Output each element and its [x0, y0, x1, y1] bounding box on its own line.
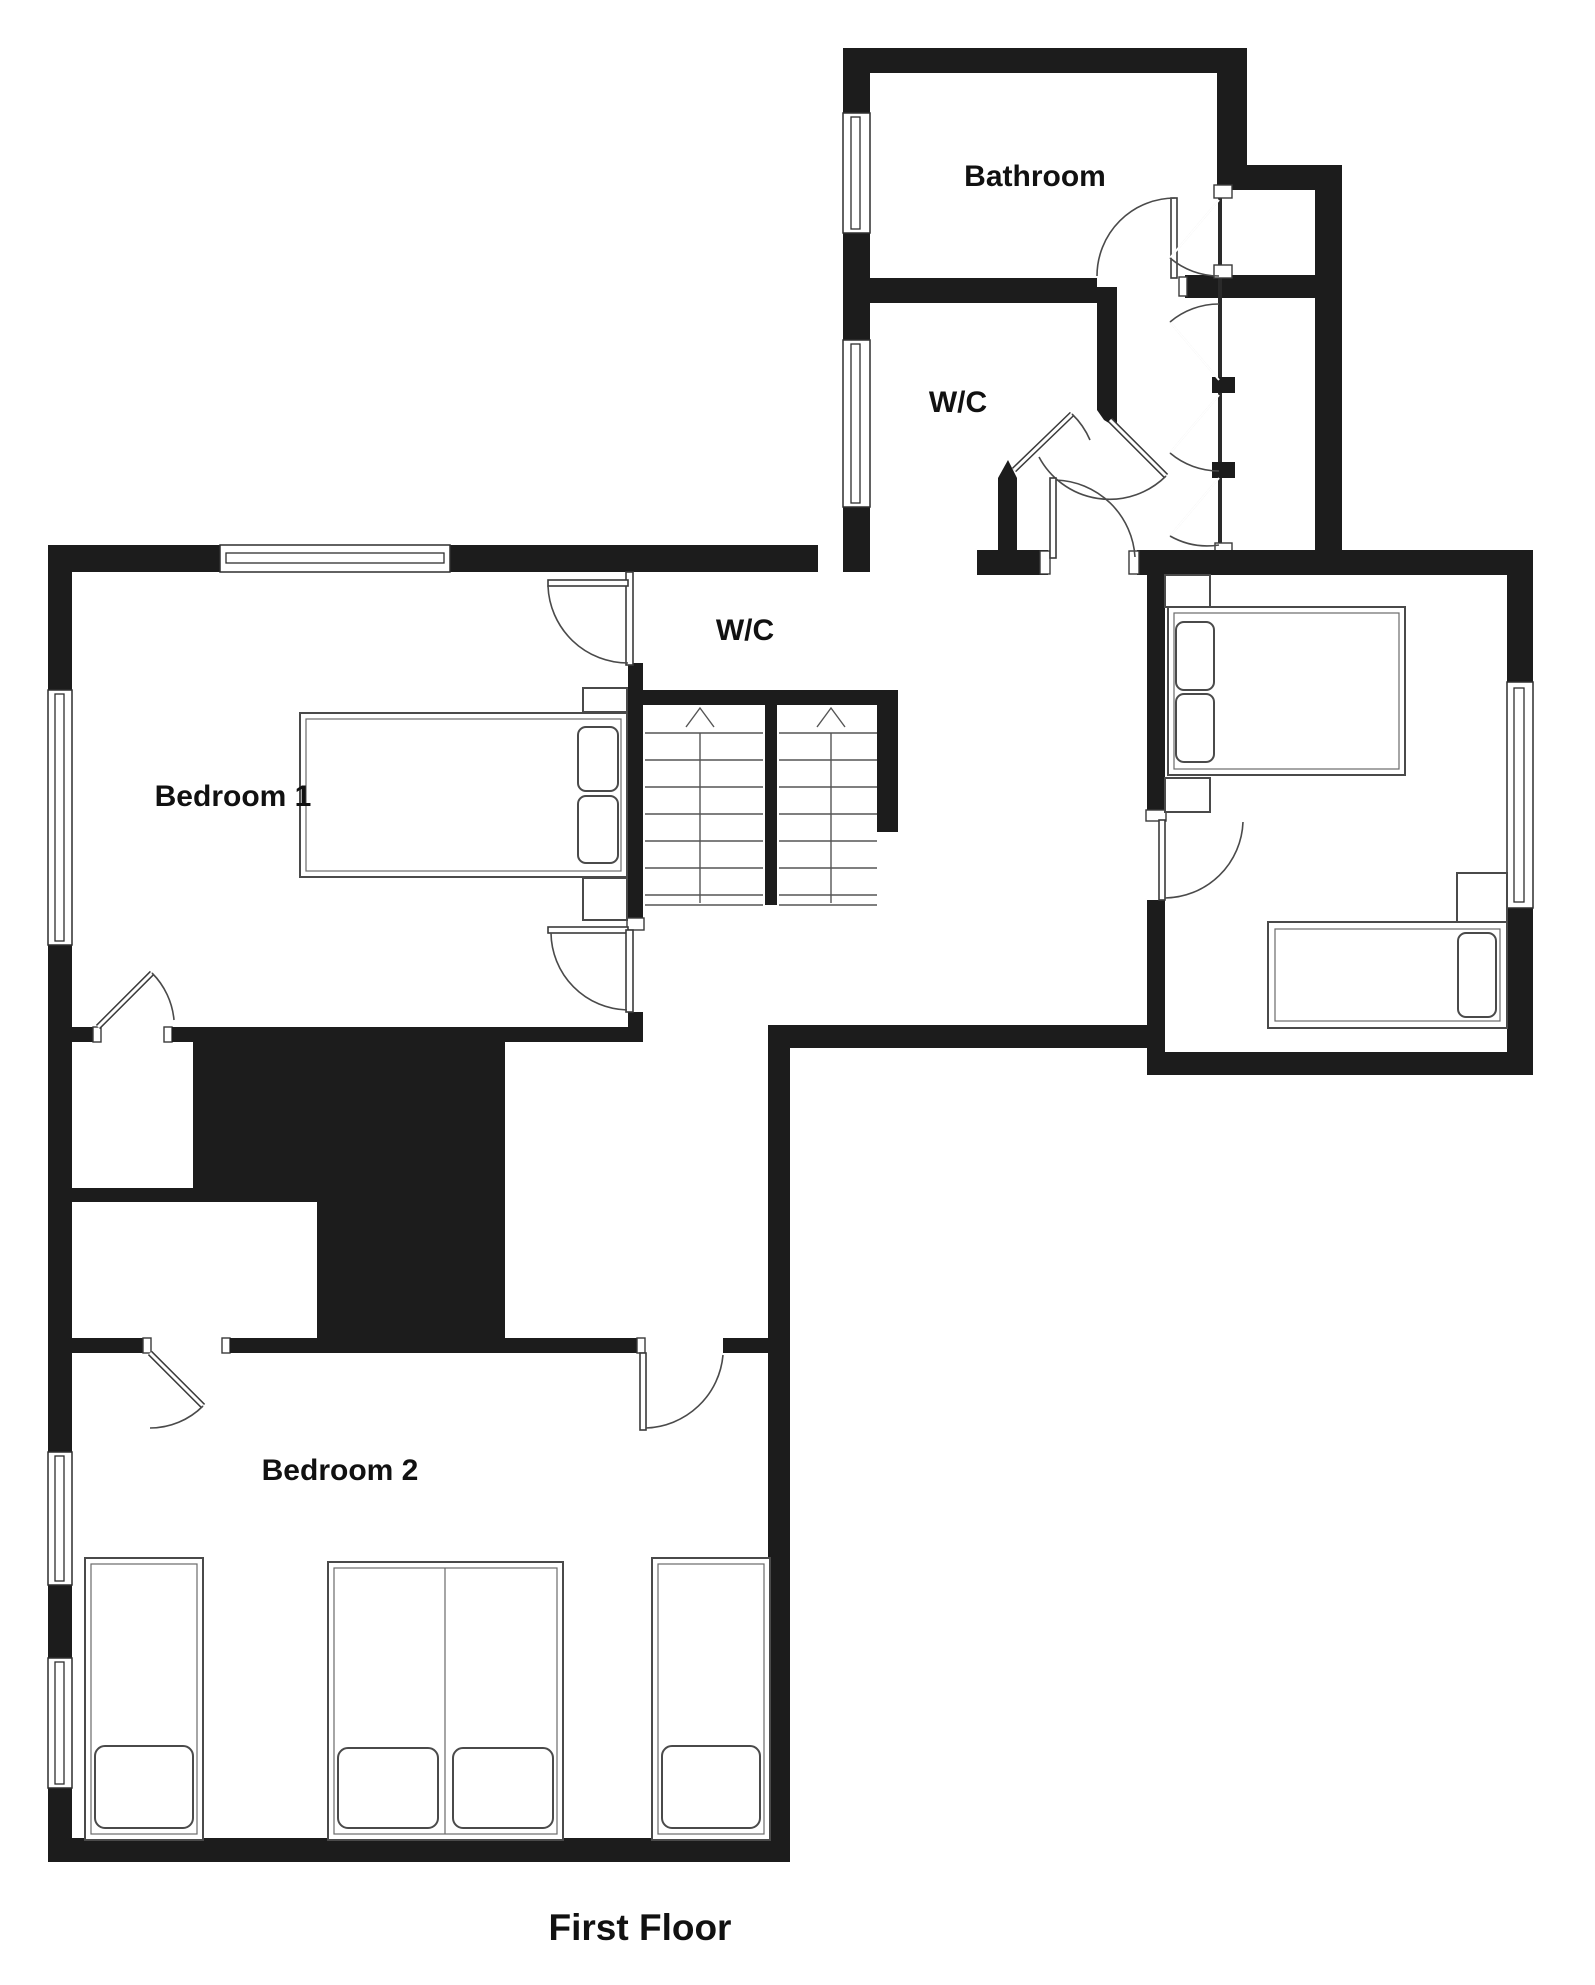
- bedroom1-top-window: [220, 545, 450, 572]
- pillow: [1458, 933, 1496, 1017]
- stair-treads-left-flight: [645, 733, 763, 905]
- pillow: [1176, 622, 1214, 690]
- top-section-walls: [843, 48, 1342, 575]
- bedroom2-door-left: [150, 1353, 203, 1428]
- pillow: [1176, 694, 1214, 762]
- bedside-table: [1165, 778, 1210, 812]
- pillow: [453, 1748, 553, 1828]
- bedroom1-left-window: [48, 690, 72, 945]
- pillow: [95, 1746, 193, 1828]
- bedroom2-door-right: [640, 1353, 723, 1430]
- closet-door-4: [1170, 478, 1219, 546]
- bedside-table: [1165, 575, 1210, 607]
- wc-lower-label: W/C: [716, 614, 774, 647]
- stair-up-arrow-left: [686, 708, 714, 903]
- wc-upper-door: [1014, 414, 1090, 470]
- solid-core-lower: [317, 1188, 505, 1340]
- closet-door-3: [1170, 395, 1219, 471]
- bedroom1-furniture: [300, 688, 627, 920]
- bedroom2-furniture: [85, 1558, 770, 1840]
- bedside-table: [1457, 873, 1507, 922]
- double-bed: [1168, 607, 1405, 775]
- pillow: [338, 1748, 438, 1828]
- pillow: [662, 1746, 760, 1828]
- floor-plan-page: Bathroom W/C W/C Bedroom 1 Bedroom 2 Fir…: [0, 0, 1595, 1985]
- double-bed: [300, 713, 627, 877]
- wc-upper-window: [843, 340, 870, 507]
- wc-upper-label: W/C: [929, 386, 987, 419]
- landing-hall-door: [1040, 478, 1139, 574]
- hallway-closets: [1170, 185, 1235, 556]
- staircase: [645, 708, 877, 905]
- bedroom1-label: Bedroom 1: [155, 780, 312, 813]
- stair-up-arrow-right: [817, 708, 845, 903]
- bedroom3-furniture: [1165, 575, 1507, 1028]
- bathroom-window: [843, 113, 870, 233]
- closet-door-2: [1170, 304, 1219, 380]
- twin-beds: [328, 1562, 563, 1840]
- bedroom3-right-window: [1507, 682, 1533, 908]
- solid-core-upper: [203, 1037, 505, 1190]
- bathroom-door: [1097, 198, 1187, 296]
- bedroom1-closet-door: [98, 973, 174, 1027]
- wc-lower-door: [548, 572, 633, 665]
- pillow: [578, 796, 618, 863]
- hallway-door: [1039, 420, 1166, 499]
- single-bed: [652, 1558, 770, 1840]
- single-bed: [85, 1558, 203, 1840]
- bedside-table: [583, 688, 627, 712]
- page-title: First Floor: [549, 1907, 732, 1948]
- bedroom2-left-window-2: [48, 1658, 72, 1788]
- bedroom1-door: [548, 927, 633, 1012]
- pillow: [578, 727, 618, 791]
- floor-plan-drawing: Bathroom W/C W/C Bedroom 1 Bedroom 2 Fir…: [0, 0, 1595, 1985]
- bedroom3-door: [1159, 820, 1243, 900]
- bedroom2-label: Bedroom 2: [262, 1454, 419, 1487]
- stair-treads-right-flight: [779, 733, 877, 905]
- bedside-table: [583, 878, 627, 920]
- bathroom-label: Bathroom: [964, 160, 1106, 193]
- bedroom2-left-window-1: [48, 1452, 72, 1585]
- single-bed: [1268, 922, 1507, 1028]
